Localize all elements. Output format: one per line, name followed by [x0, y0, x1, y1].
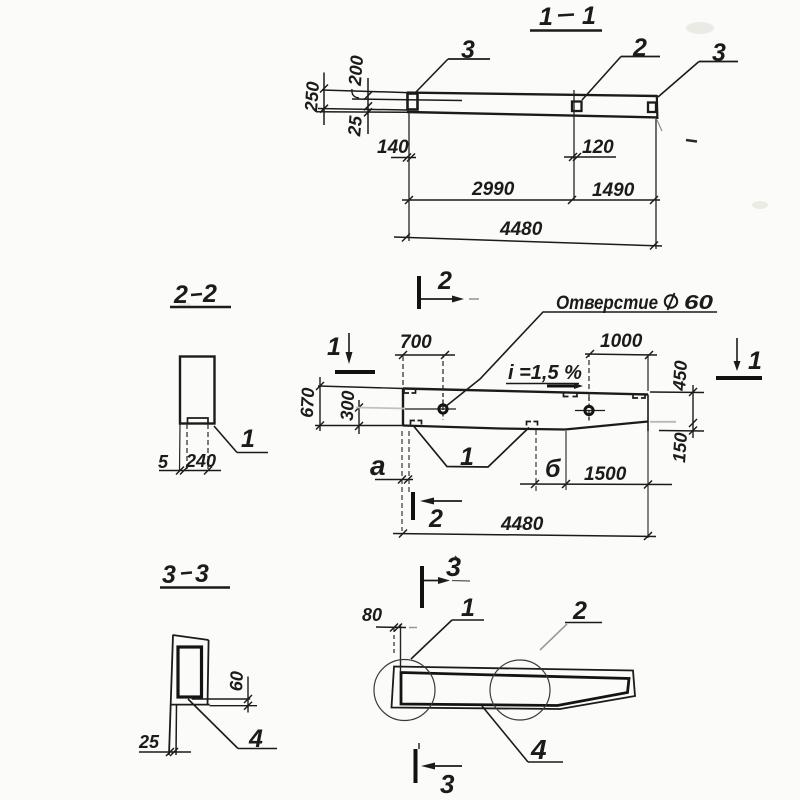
- svg-text:1: 1: [582, 2, 596, 30]
- svg-text:670: 670: [297, 387, 319, 418]
- svg-text:120: 120: [582, 137, 614, 158]
- svg-text:4480: 4480: [499, 219, 543, 240]
- svg-text:1: 1: [241, 425, 255, 453]
- svg-text:1: 1: [461, 594, 475, 622]
- svg-text:3: 3: [712, 39, 726, 67]
- svg-text:1: 1: [327, 333, 341, 361]
- svg-text:25: 25: [138, 732, 160, 752]
- svg-text:2: 2: [437, 267, 452, 295]
- svg-text:2: 2: [202, 280, 217, 308]
- svg-text:700: 700: [400, 332, 432, 353]
- svg-text:1500: 1500: [584, 464, 627, 485]
- svg-text:250: 250: [301, 81, 323, 113]
- svg-text:4480: 4480: [500, 514, 544, 535]
- svg-text:3: 3: [162, 561, 176, 589]
- svg-text:450: 450: [669, 360, 691, 392]
- svg-text:4: 4: [530, 734, 547, 765]
- svg-text:2990: 2990: [471, 179, 515, 200]
- svg-text:140: 140: [377, 137, 409, 158]
- svg-text:1: 1: [748, 347, 762, 375]
- svg-text:60: 60: [226, 671, 247, 692]
- svg-text:60: 60: [684, 292, 713, 314]
- svg-text:25: 25: [344, 114, 366, 138]
- svg-text:2: 2: [632, 34, 647, 62]
- svg-text:б: б: [545, 455, 562, 483]
- svg-text:3: 3: [440, 769, 455, 799]
- svg-text:1: 1: [460, 443, 474, 471]
- svg-text:3: 3: [195, 560, 209, 588]
- svg-text:200: 200: [345, 55, 368, 88]
- svg-text:Отверстие: Отверстие: [556, 292, 658, 314]
- svg-text:2: 2: [428, 505, 443, 533]
- svg-text:i =1,5 %: i =1,5 %: [508, 362, 582, 384]
- svg-text:300: 300: [337, 390, 359, 421]
- svg-text:2: 2: [173, 281, 188, 309]
- svg-text:80: 80: [362, 605, 382, 625]
- svg-text:4: 4: [248, 725, 263, 753]
- svg-text:а: а: [370, 450, 386, 481]
- svg-text:240: 240: [185, 451, 216, 471]
- svg-text:1000: 1000: [600, 331, 643, 352]
- svg-text:1490: 1490: [592, 180, 635, 201]
- svg-text:3: 3: [446, 552, 461, 582]
- svg-text:2: 2: [572, 597, 587, 625]
- svg-text:5: 5: [158, 452, 169, 472]
- svg-text:1: 1: [539, 3, 553, 31]
- svg-text:150: 150: [669, 432, 691, 463]
